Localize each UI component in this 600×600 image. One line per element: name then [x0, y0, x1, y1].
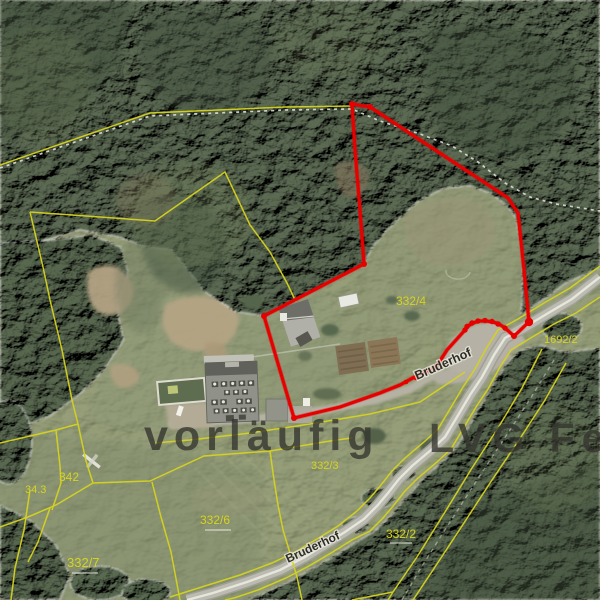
svg-text:34.3: 34.3 — [25, 484, 46, 496]
svg-text:332/2: 332/2 — [386, 527, 416, 541]
svg-text:LVG Feld: LVG Feld — [429, 415, 600, 461]
svg-text:332/7: 332/7 — [67, 555, 100, 570]
svg-text:332/3: 332/3 — [311, 460, 339, 472]
svg-text:1692/2: 1692/2 — [544, 334, 578, 346]
svg-text:vorläufig: vorläufig — [144, 412, 380, 460]
svg-text:342: 342 — [59, 470, 79, 484]
svg-text:332/4: 332/4 — [396, 294, 426, 308]
svg-text:332/6: 332/6 — [200, 513, 230, 527]
